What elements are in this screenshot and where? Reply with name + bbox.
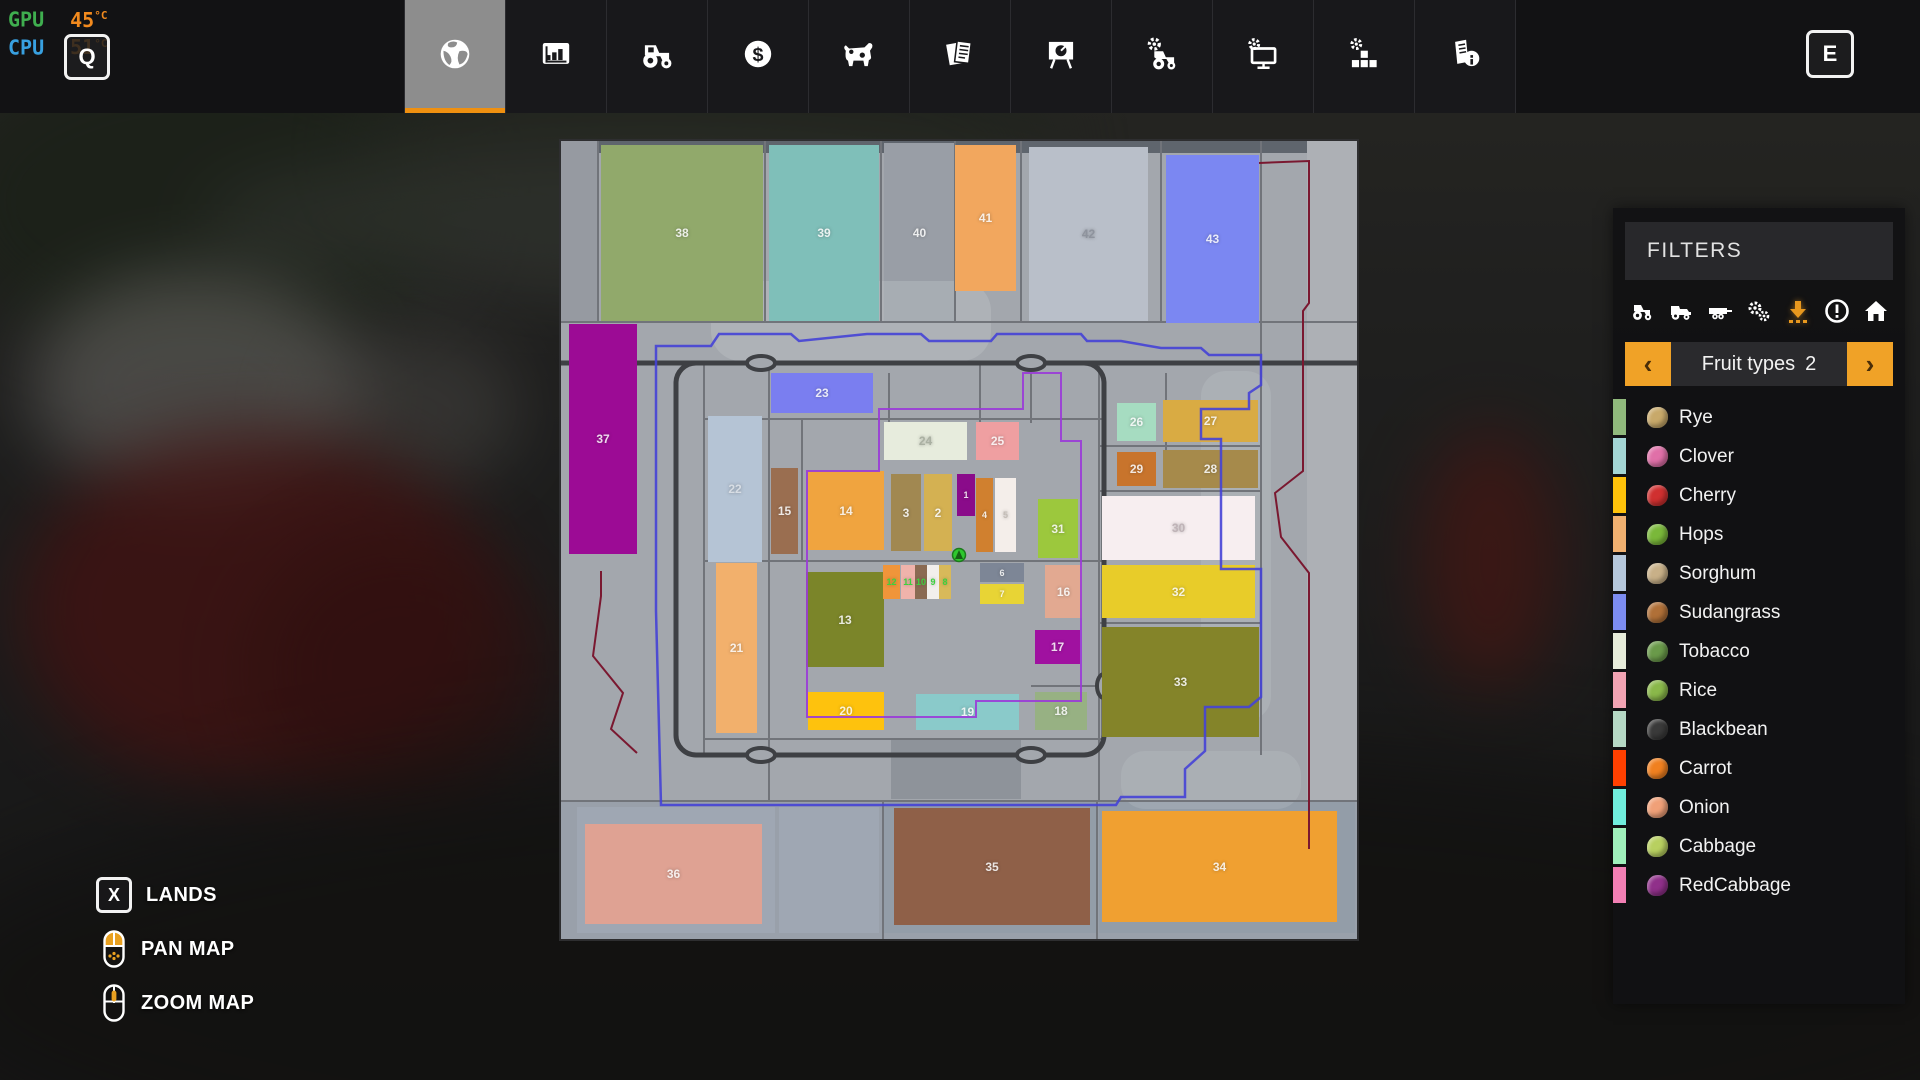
crop-color-bar	[1613, 633, 1626, 669]
map-field-24[interactable]: 24	[884, 422, 967, 460]
category-next-button[interactable]: ›	[1847, 342, 1893, 386]
crop-color-bar	[1613, 594, 1626, 630]
map-field-11[interactable]: 11	[901, 565, 915, 599]
crop-name: Rye	[1679, 398, 1713, 437]
filter-category-selector: ‹ Fruit types 2 ›	[1625, 342, 1893, 386]
crop-name: Cherry	[1679, 476, 1736, 515]
gpu-label: GPU	[8, 8, 44, 32]
map-field-27[interactable]: 27	[1163, 400, 1258, 442]
crop-color-bar	[1613, 399, 1626, 435]
crop-color-bar	[1613, 867, 1626, 903]
map-field-32[interactable]: 32	[1102, 565, 1255, 618]
category-count: 2	[1805, 353, 1816, 376]
crop-list-item[interactable]: Hops	[1613, 515, 1905, 554]
crop-name: Carrot	[1679, 749, 1732, 788]
map-field-21[interactable]: 21	[716, 563, 757, 733]
map-field-20[interactable]: 20	[808, 692, 884, 730]
general-settings-icon	[1342, 32, 1386, 81]
tab-vehicles[interactable]	[607, 0, 708, 113]
map-field-36[interactable]: 36	[585, 824, 762, 924]
crop-name: Hops	[1679, 515, 1723, 554]
map-field-22[interactable]: 22	[708, 416, 762, 562]
crop-list-item[interactable]: Blackbean	[1613, 710, 1905, 749]
pan-map-label: PAN MAP	[141, 938, 235, 961]
crop-color-bar	[1613, 438, 1626, 474]
animals-cow-icon	[837, 32, 881, 81]
map-field-12[interactable]: 12	[883, 565, 900, 599]
vehicle-service-icon	[1140, 32, 1184, 81]
map-field-31[interactable]: 31	[1038, 499, 1078, 558]
crop-icon	[1647, 875, 1668, 896]
tractor-icon[interactable]	[1627, 296, 1657, 326]
top-menu-bar: GPU45°C CPU51°C Q E $	[0, 0, 1920, 113]
map-field-34[interactable]: 34	[1102, 811, 1337, 922]
contracts-icon	[938, 32, 982, 81]
tab-help[interactable]	[1415, 0, 1516, 113]
map-field-19[interactable]: 19	[916, 694, 1019, 730]
map-field-23[interactable]: 23	[771, 373, 873, 413]
mouse-zoom-icon	[101, 983, 127, 1023]
map-field-41[interactable]: 41	[955, 145, 1016, 291]
map-field-13[interactable]: 13	[806, 572, 884, 667]
crop-list-item[interactable]: Sudangrass	[1613, 593, 1905, 632]
statistics-icon	[534, 32, 578, 81]
map-field-15[interactable]: 15	[771, 468, 798, 554]
lands-label: LANDS	[146, 884, 217, 907]
tractor-icon	[635, 32, 679, 81]
globe-icon	[433, 32, 477, 81]
map-field-37[interactable]: 37	[569, 324, 637, 554]
gears-icon[interactable]	[1744, 296, 1774, 326]
crop-list-item[interactable]: Cherry	[1613, 476, 1905, 515]
key-hint-e: E	[1806, 30, 1854, 78]
help-icon	[1443, 32, 1487, 81]
cpu-label: CPU	[8, 35, 44, 59]
map-field-1[interactable]: 1	[957, 474, 975, 516]
map-field-18[interactable]: 18	[1035, 692, 1087, 730]
crop-icon	[1647, 602, 1668, 623]
menu-tabs: $	[404, 0, 1516, 113]
crop-color-bar	[1613, 672, 1626, 708]
filters-panel: FILTERS ‹ Fruit types 2 › Rye	[1613, 208, 1905, 1004]
crop-icon	[1647, 680, 1668, 701]
crop-color-bar	[1613, 828, 1626, 864]
crop-list-item[interactable]: Sorghum	[1613, 554, 1905, 593]
crop-name: Tobacco	[1679, 632, 1750, 671]
tab-statistics[interactable]	[506, 0, 607, 113]
crop-name: Sorghum	[1679, 554, 1756, 593]
crop-icon	[1647, 563, 1668, 584]
map-field-33[interactable]: 33	[1102, 627, 1259, 737]
map-field-39[interactable]: 39	[769, 145, 879, 321]
game-settings-icon	[1241, 32, 1285, 81]
crop-name: Onion	[1679, 788, 1730, 827]
tab-vehicle-service[interactable]	[1112, 0, 1213, 113]
map-field-9[interactable]: 9	[927, 565, 939, 599]
crop-icon	[1647, 758, 1668, 779]
harvester-icon[interactable]	[1666, 296, 1696, 326]
crop-color-bar	[1613, 516, 1626, 552]
trailer-icon[interactable]	[1705, 296, 1735, 326]
map-field-14[interactable]: 14	[808, 471, 884, 550]
crop-icon	[1647, 836, 1668, 857]
map-field-6[interactable]: 6	[980, 563, 1024, 582]
zoom-map-label: ZOOM MAP	[141, 992, 254, 1015]
svg-text:$: $	[752, 44, 763, 66]
crop-icon	[1647, 797, 1668, 818]
tab-map[interactable]	[404, 0, 506, 113]
farm-map[interactable]: 3839404142433723242526272928221514321453…	[561, 141, 1357, 939]
map-field-40[interactable]: 40	[884, 145, 955, 321]
crop-list-item[interactable]: Onion	[1613, 788, 1905, 827]
map-field-10[interactable]: 10	[915, 565, 927, 599]
crop-name: Blackbean	[1679, 710, 1768, 749]
legend-pan-map: PAN MAP	[96, 922, 254, 976]
crop-color-bar	[1613, 477, 1626, 513]
filters-title: FILTERS	[1625, 222, 1893, 280]
map-field-35[interactable]: 35	[894, 808, 1090, 925]
map-field-28[interactable]: 28	[1163, 450, 1258, 488]
category-label: Fruit types 2	[1671, 342, 1847, 386]
tab-animals[interactable]	[809, 0, 910, 113]
crop-icon	[1647, 524, 1668, 545]
crop-list-item[interactable]: Clover	[1613, 437, 1905, 476]
map-field-42[interactable]: 42	[1029, 147, 1148, 321]
tab-contracts[interactable]	[910, 0, 1011, 113]
crop-name: Sudangrass	[1679, 593, 1780, 632]
tab-general-settings[interactable]	[1314, 0, 1415, 113]
key-hint-q: Q	[64, 34, 110, 80]
crop-list-item[interactable]: Rye	[1613, 398, 1905, 437]
crop-color-bar	[1613, 711, 1626, 747]
map-field-2[interactable]: 2	[924, 474, 952, 551]
production-board-icon	[1039, 32, 1083, 81]
gpu-temp: 45	[70, 8, 94, 32]
crop-list-item[interactable]: RedCabbage	[1613, 866, 1905, 905]
crop-icon	[1647, 719, 1668, 740]
legend-zoom-map: ZOOM MAP	[96, 976, 254, 1030]
map-field-30[interactable]: 30	[1102, 496, 1255, 560]
map-field-26[interactable]: 26	[1117, 403, 1156, 441]
crop-color-bar	[1613, 789, 1626, 825]
crop-icon	[1647, 407, 1668, 428]
map-field-17[interactable]: 17	[1035, 630, 1080, 664]
map-field-16[interactable]: 16	[1045, 565, 1082, 618]
legend-lands: X LANDS	[96, 868, 254, 922]
map-field-8[interactable]: 8	[939, 565, 951, 599]
crop-icon	[1647, 641, 1668, 662]
map-field-7[interactable]: 7	[980, 584, 1024, 604]
fs19-map-screen: { "hud": { "gpu_label": "GPU", "gpu_temp…	[0, 0, 1920, 1080]
crop-list: Rye Clover Cherry Hops Sorghum	[1613, 398, 1905, 905]
crop-list-item[interactable]: Rice	[1613, 671, 1905, 710]
crop-list-item[interactable]: Cabbage	[1613, 827, 1905, 866]
key-hint-x: X	[96, 877, 132, 913]
map-field-43[interactable]: 43	[1166, 155, 1259, 323]
map-field-4[interactable]: 4	[976, 478, 993, 552]
crop-name: RedCabbage	[1679, 866, 1791, 905]
crop-name: Rice	[1679, 671, 1717, 710]
tab-production[interactable]	[1011, 0, 1112, 113]
player-marker-icon	[953, 549, 966, 562]
tab-finances[interactable]: $	[708, 0, 809, 113]
filter-icon-row	[1627, 290, 1891, 332]
map-field-3[interactable]: 3	[891, 474, 921, 551]
mouse-pan-icon	[101, 929, 127, 969]
map-field-38[interactable]: 38	[601, 145, 763, 321]
finances-icon: $	[736, 32, 780, 81]
crop-name: Cabbage	[1679, 827, 1756, 866]
crop-color-bar	[1613, 750, 1626, 786]
crop-list-item[interactable]: Carrot	[1613, 749, 1905, 788]
crop-icon	[1647, 446, 1668, 467]
crop-icon	[1647, 485, 1668, 506]
map-field-5[interactable]: 5	[995, 478, 1016, 552]
category-prev-button[interactable]: ‹	[1625, 342, 1671, 386]
crop-name: Clover	[1679, 437, 1734, 476]
download-icon[interactable]	[1783, 296, 1813, 326]
alert-icon[interactable]	[1822, 296, 1852, 326]
tab-game-settings[interactable]	[1213, 0, 1314, 113]
map-field-25[interactable]: 25	[976, 422, 1019, 460]
crop-color-bar	[1613, 555, 1626, 591]
crop-list-item[interactable]: Tobacco	[1613, 632, 1905, 671]
house-icon[interactable]	[1861, 296, 1891, 326]
map-field-29[interactable]: 29	[1117, 452, 1156, 486]
input-legend: X LANDS PAN MAP ZOOM MAP	[96, 868, 254, 1030]
